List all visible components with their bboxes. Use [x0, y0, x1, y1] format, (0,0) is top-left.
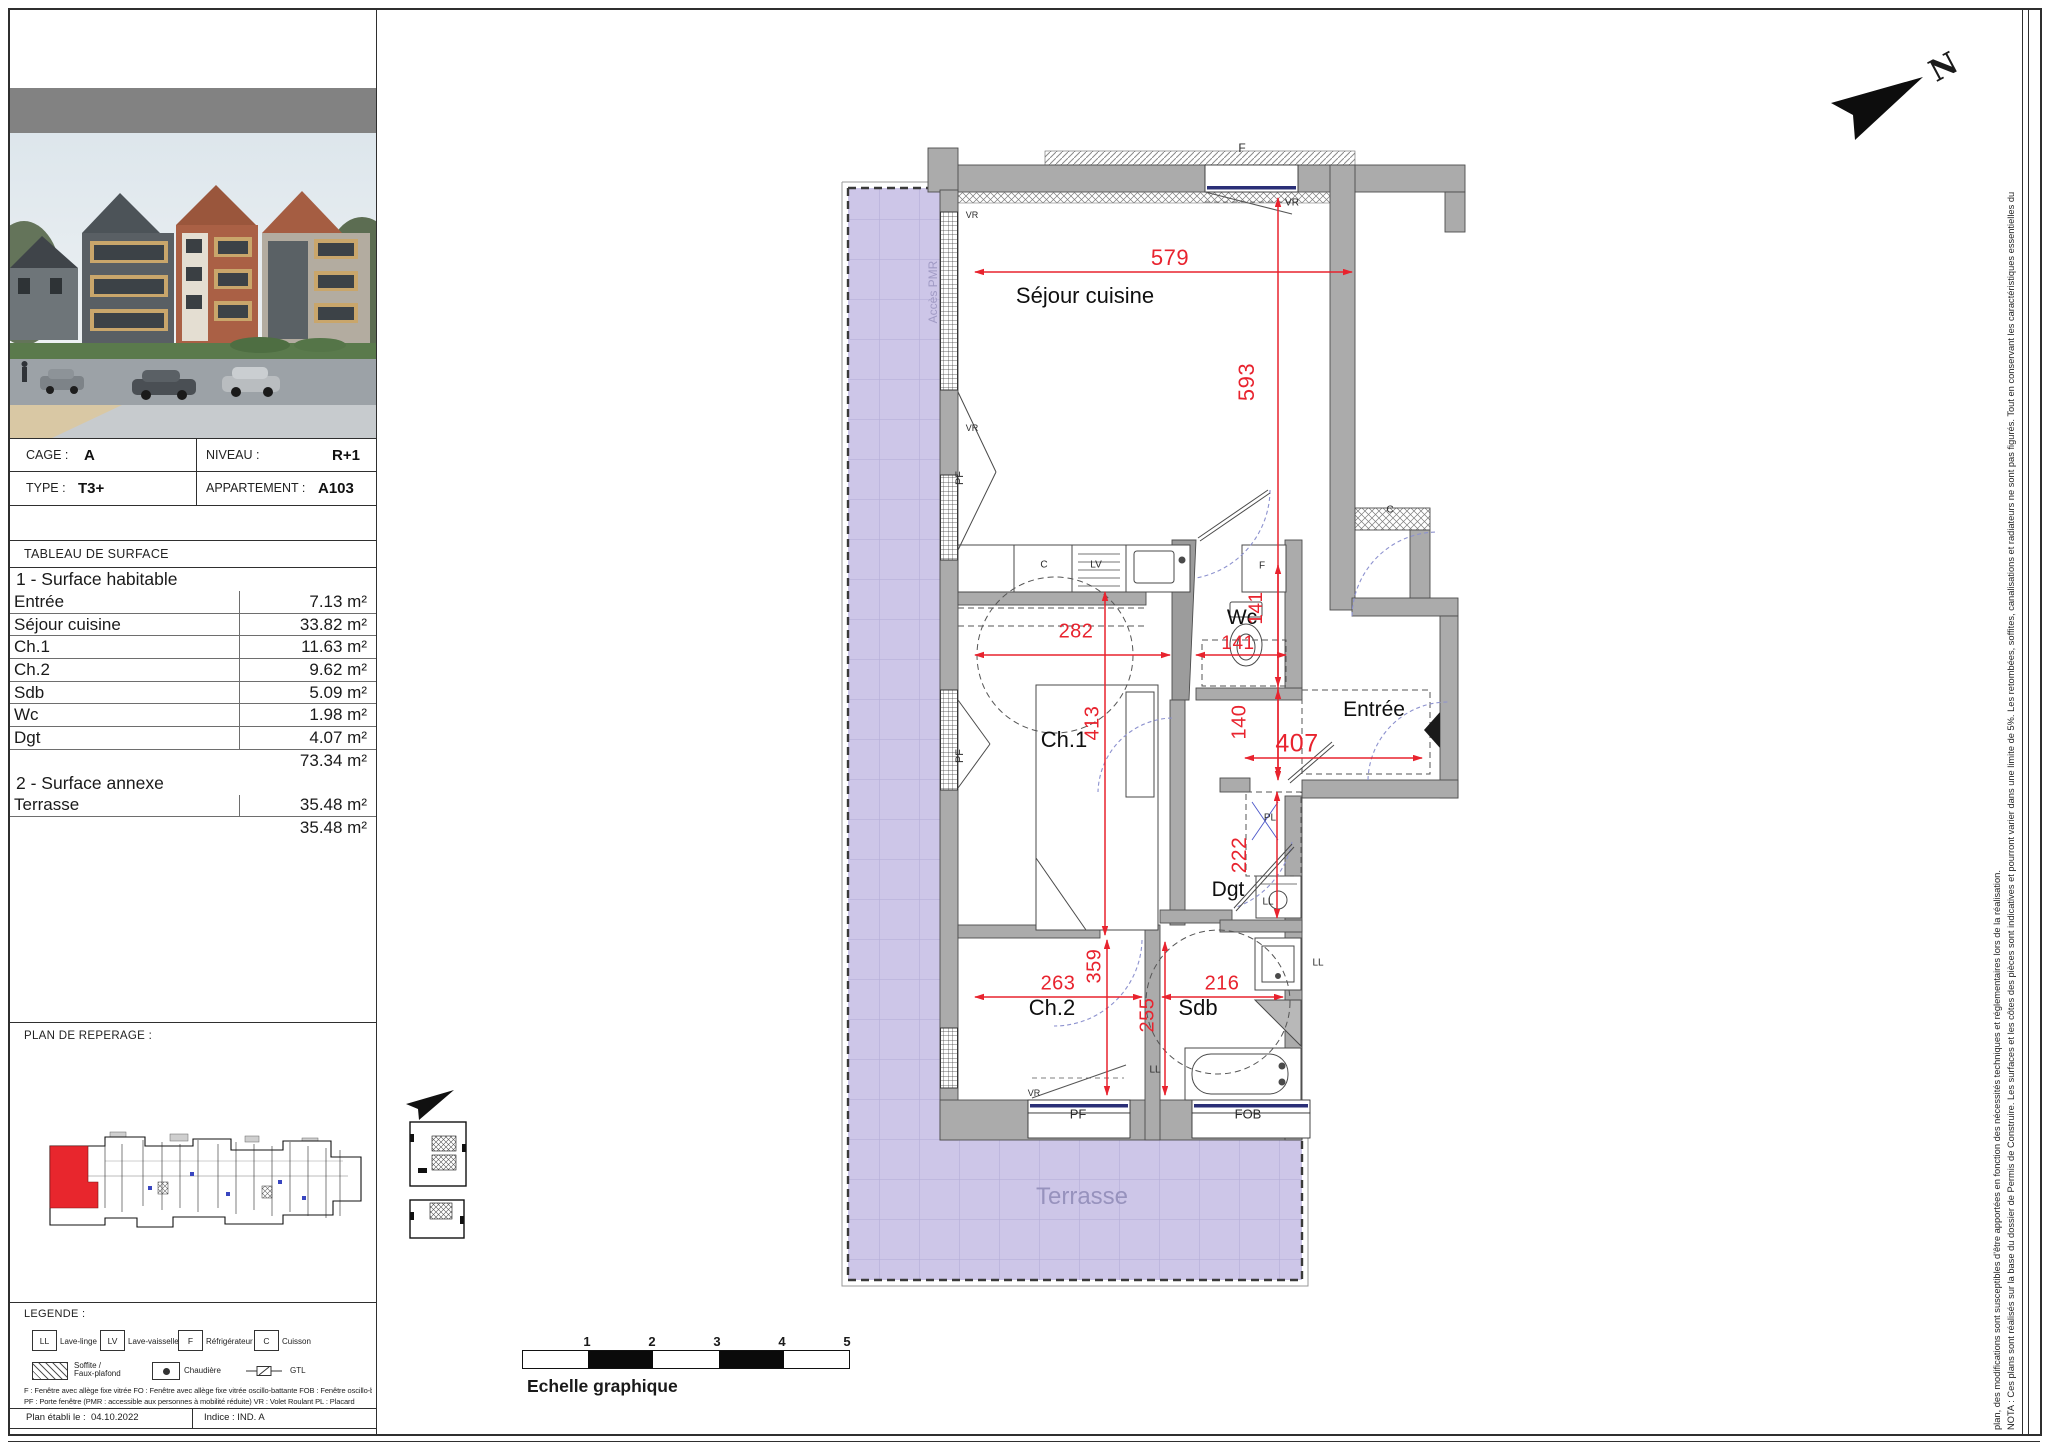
acces-pmr-label: Accès PMR — [926, 261, 940, 324]
scalebar-tick: 1 — [583, 1334, 590, 1349]
legend-soffite-label: Soffite / Faux-plafond — [74, 1362, 121, 1378]
footer-divider — [192, 1408, 193, 1428]
table-row: Sdb5.09 m² — [10, 682, 376, 705]
key-plan-annex-blocks — [396, 1082, 480, 1312]
surface-section-1: 1 - Surface habitable — [10, 568, 376, 591]
legend-lv-icon: LV — [100, 1330, 125, 1351]
legende-top-line — [10, 1302, 376, 1303]
room-label-ch1: Ch.1 — [1041, 727, 1087, 753]
lv-label: LV — [1090, 560, 1102, 571]
legend-f-label: Réfrigérateur — [206, 1337, 253, 1346]
niveau-label: NIVEAU : — [206, 448, 260, 462]
dim-263: 263 — [1041, 973, 1076, 996]
table-row: Terrasse35.48 m² — [10, 795, 376, 818]
legend-note-1: F : Fenêtre avec allège fixe vitrée FO :… — [24, 1386, 372, 1395]
dim-407: 407 — [1275, 730, 1318, 759]
table-row: Entrée7.13 m² — [10, 591, 376, 614]
fob-label-bottom: FOB — [1235, 1107, 1262, 1122]
legend-chaudiere-label: Chaudière — [184, 1366, 221, 1375]
surface-total-1: 73.34 m² — [10, 750, 376, 772]
vr-label-top: VR — [1285, 198, 1299, 209]
nota-line-2: plan, des modifications sont susceptible… — [1992, 870, 2002, 1430]
table-row: Ch.29.62 m² — [10, 659, 376, 682]
ll-label-dgt: LL — [1262, 897, 1273, 908]
scalebar-tick: 4 — [778, 1334, 785, 1349]
legend-f-icon: F — [178, 1330, 203, 1351]
dim-222: 222 — [1228, 837, 1252, 874]
dim-141-h: 141 — [1221, 633, 1254, 655]
appartement-value: A103 — [318, 480, 354, 497]
room-label-dgt: Dgt — [1212, 878, 1245, 902]
walls — [928, 148, 1465, 1140]
entry-door-icon — [1424, 712, 1440, 748]
footer-top-line — [10, 1408, 376, 1409]
window-f-label: F — [1238, 141, 1245, 155]
vr-label-wall-2: VR — [966, 423, 979, 433]
legend-gtl-label: GTL — [290, 1366, 306, 1375]
nota-line-1: NOTA : Ces plans sont réalisés sur la ba… — [2006, 192, 2016, 1430]
niveau-value: R+1 — [332, 447, 360, 464]
scalebar-bar — [522, 1350, 850, 1369]
scalebar-tick: 5 — [843, 1334, 850, 1349]
info-table-bottom — [10, 505, 376, 506]
dim-413: 413 — [1082, 706, 1105, 741]
surface-total-2: 35.48 m² — [10, 817, 376, 839]
legende-title: LEGENDE : — [24, 1308, 85, 1320]
type-value: T3+ — [78, 480, 104, 497]
north-arrow-icon — [1826, 34, 1996, 152]
info-table-top — [10, 438, 376, 439]
dim-255: 255 — [1137, 998, 1160, 1033]
appartement-label: APPARTEMENT : — [206, 481, 305, 495]
pf-label-wall-1: PF — [954, 471, 966, 485]
scalebar-tick: 2 — [648, 1334, 655, 1349]
legend-c-label: Cuisson — [282, 1337, 311, 1346]
ll-label-right: LL — [1312, 958, 1323, 969]
building-render-image — [10, 133, 376, 438]
legend-ll-icon: LL — [32, 1330, 57, 1351]
pl-label: PL — [1264, 813, 1276, 824]
footer-bottom-line — [10, 1428, 376, 1429]
type-label: TYPE : — [26, 481, 66, 495]
legend-c-icon: C — [254, 1330, 279, 1351]
nota-divider-1 — [2022, 8, 2023, 1434]
legend-chaudiere-icon — [152, 1362, 180, 1380]
dim-593: 593 — [1234, 363, 1260, 401]
dim-579: 579 — [1151, 245, 1189, 271]
dim-140: 140 — [1229, 705, 1252, 740]
table-row: Séjour cuisine33.82 m² — [10, 614, 376, 637]
cuisson-label: C — [1040, 560, 1047, 571]
cage-value: A — [84, 447, 95, 464]
surface-table-title: TABLEAU DE SURFACE — [24, 547, 169, 561]
sheet-bottom-line — [8, 1441, 2040, 1442]
vr-label-bottom: VR — [1028, 1088, 1041, 1098]
nota-divider-2 — [2028, 8, 2029, 1434]
reperage-top-line — [10, 1022, 376, 1023]
dim-282: 282 — [1059, 621, 1094, 644]
footer-date: Plan établi le : 04.10.2022 — [26, 1412, 139, 1423]
dim-141-v: 141 — [1246, 591, 1268, 624]
room-label-sejour: Séjour cuisine — [1016, 283, 1154, 309]
ll-label-sdb: LL — [1149, 1065, 1160, 1076]
legend-lv-label: Lave-vaisselle — [128, 1337, 179, 1346]
surface-section-2: 2 - Surface annexe — [10, 772, 376, 795]
room-label-terrasse: Terrasse — [1036, 1183, 1128, 1211]
footer-indice: Indice : IND. A — [204, 1412, 265, 1423]
room-label-ch2: Ch.2 — [1029, 995, 1075, 1021]
table-row: Wc1.98 m² — [10, 704, 376, 727]
room-label-entree: Entrée — [1343, 698, 1405, 722]
table-row: Ch.111.63 m² — [10, 636, 376, 659]
reperage-title: PLAN DE REPERAGE : — [24, 1030, 152, 1042]
pf-label-wall-2: PF — [954, 749, 966, 763]
legend-soffite-icon — [32, 1362, 68, 1380]
table-row: Dgt4.07 m² — [10, 727, 376, 750]
cage-label: CAGE : — [26, 448, 68, 462]
info-table-mid — [10, 471, 376, 472]
sidebar-divider — [376, 8, 377, 1434]
dim-359: 359 — [1084, 949, 1107, 984]
neighbor-c-label: C — [1386, 505, 1393, 516]
vr-label-wall-1: VR — [966, 210, 979, 220]
room-label-sdb: Sdb — [1178, 995, 1217, 1021]
key-plan — [40, 1116, 370, 1241]
legend-gtl-icon — [246, 1364, 282, 1378]
info-col-divider — [196, 438, 197, 505]
dim-216: 216 — [1205, 973, 1240, 996]
pf-label-bottom: PF — [1070, 1107, 1087, 1122]
legend-ll-label: Lave-linge — [60, 1337, 97, 1346]
mini-north-arrow-icon — [406, 1090, 454, 1120]
surface-table: TABLEAU DE SURFACE 1 - Surface habitable… — [10, 540, 376, 839]
legend-note-2: PF : Porte fenêtre (PMR : accessible aux… — [24, 1397, 372, 1406]
scalebar-tick: 3 — [713, 1334, 720, 1349]
gray-band — [10, 88, 376, 133]
fridge-f-label: F — [1259, 561, 1265, 572]
scalebar-label: Echelle graphique — [527, 1376, 678, 1397]
